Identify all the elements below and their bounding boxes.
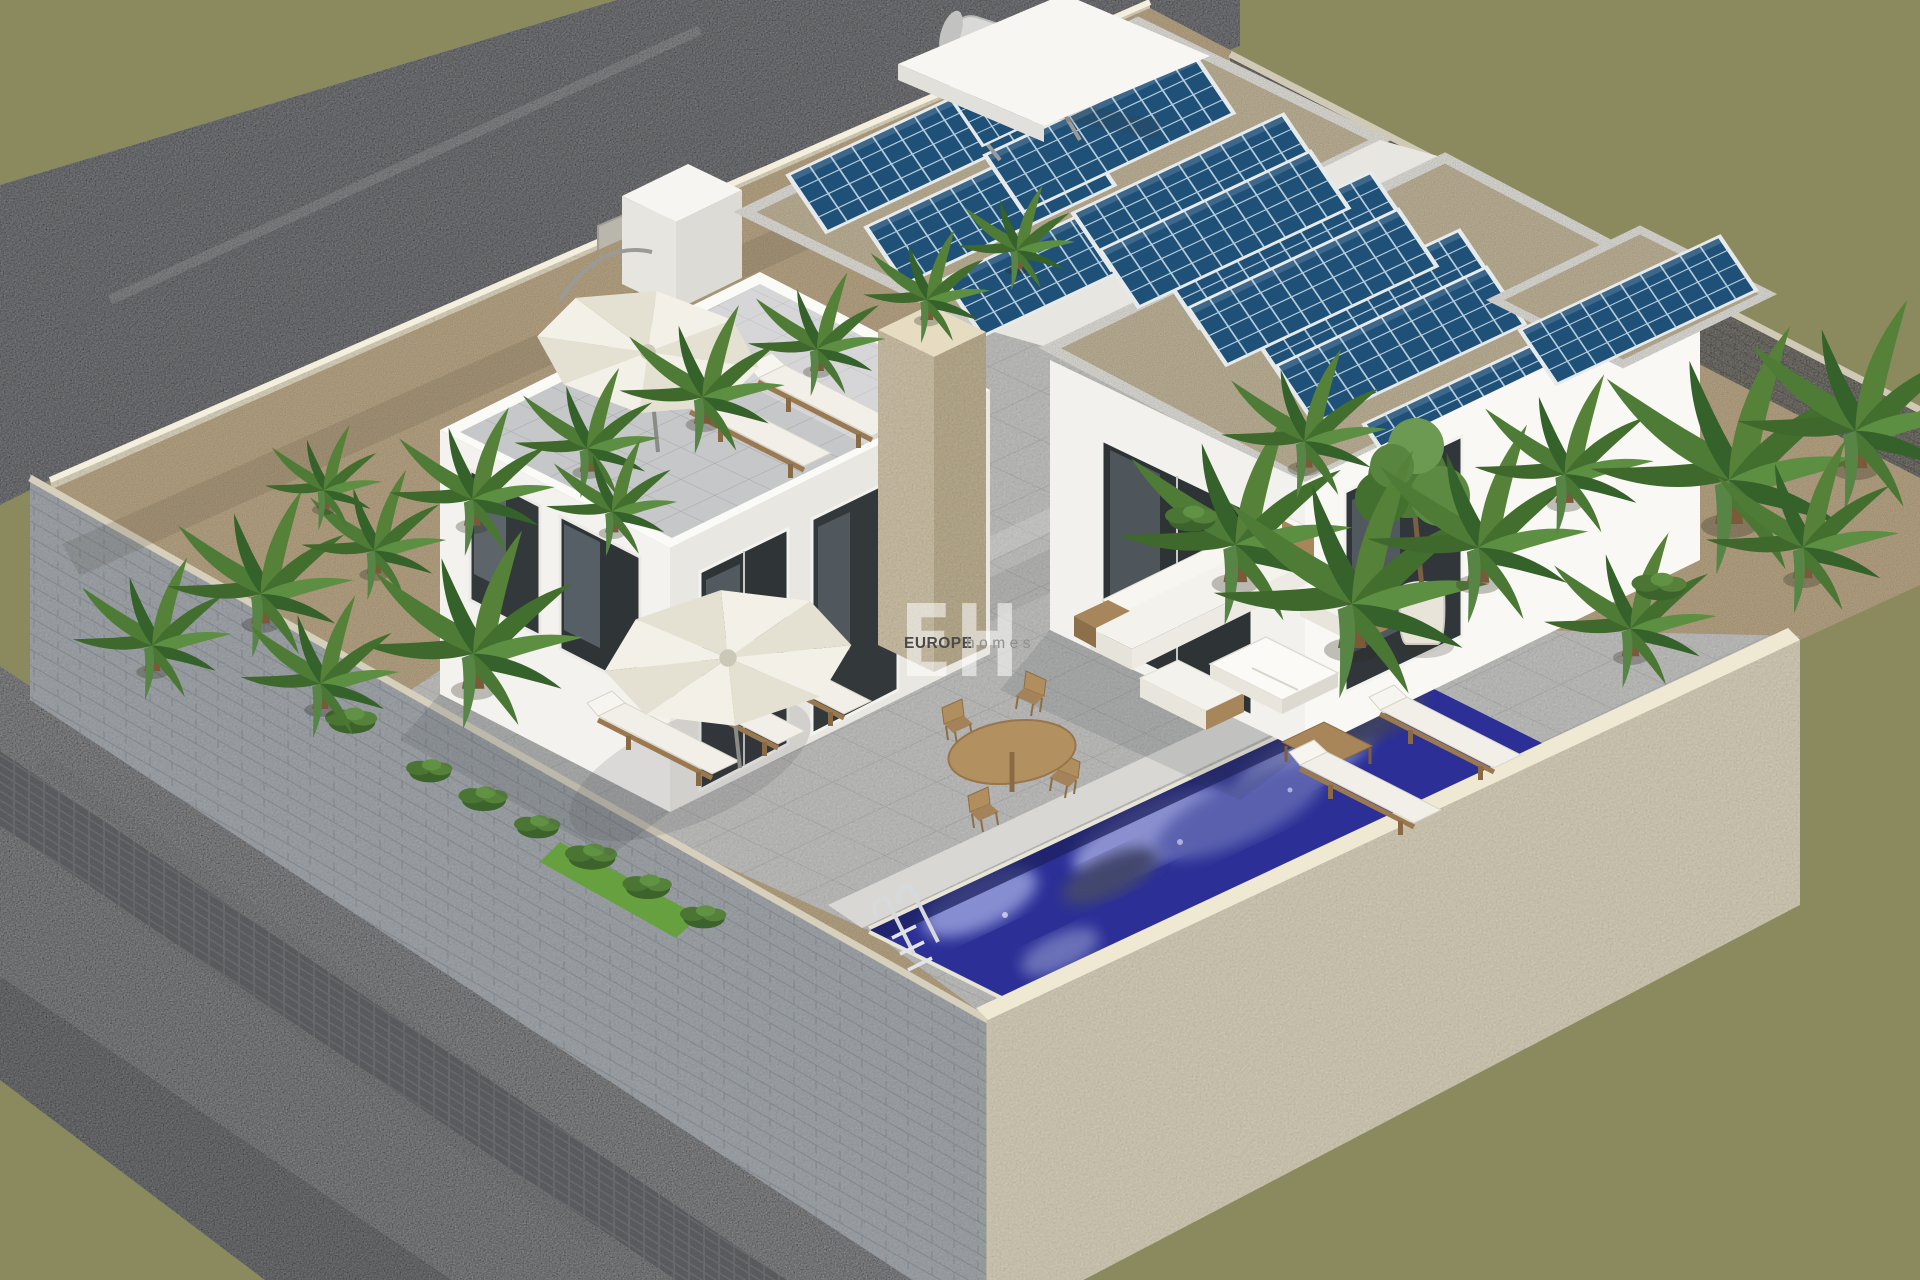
watermark-brand: EUROPE	[904, 635, 972, 652]
villa-render-svg: EH EUROPE homes	[0, 0, 1920, 1280]
watermark-brand-suffix: homes	[966, 635, 1035, 652]
render-canvas: EH EUROPE homes	[0, 0, 1920, 1280]
watermark: EH EUROPE homes	[900, 583, 1035, 700]
